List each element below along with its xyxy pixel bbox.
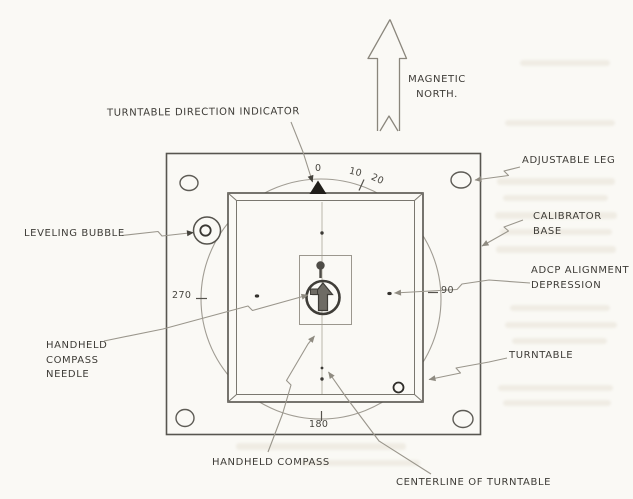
dial-mark-270: 270 (172, 290, 191, 301)
alignment-depression-left (255, 294, 259, 297)
turntable-direction-indicator-icon (310, 181, 327, 195)
label-handheld-compass-needle: HANDHELD COMPASS NEEDLE (46, 339, 107, 383)
turntable-corner-hole (394, 383, 404, 393)
leveling-bubble-gauge (194, 217, 221, 244)
label-handheld-compass: HANDHELD COMPASS (212, 456, 330, 471)
magnetic-north-arrow-icon (368, 20, 407, 132)
leader-turntable (429, 358, 507, 380)
leader-turntable-direction-indicator (291, 122, 313, 182)
compass-needle-west-tab (311, 289, 318, 295)
label-adcp-alignment-depression: ADCP ALIGNMENT DEPRESSION (531, 264, 629, 293)
label-turntable: TURNTABLE (509, 349, 573, 364)
dial-mark-0: 0 (315, 163, 321, 174)
label-magnetic-north: MAGNETIC NORTH. (407, 73, 467, 102)
dial-mark-180: 180 (309, 419, 328, 430)
alignment-depression-right (387, 292, 391, 295)
leader-leveling-bubble (122, 232, 194, 237)
scanned-diagram-page: TURNTABLE DIRECTION INDICATOR MAGNETIC N… (0, 0, 633, 499)
adjustable-leg-top-right (451, 172, 471, 188)
label-adjustable-leg: ADJUSTABLE LEG (522, 154, 615, 169)
dial-mark-90: 90 (441, 285, 454, 296)
label-leveling-bubble: LEVELING BUBBLE (24, 227, 125, 242)
adjustable-leg-bottom-left (176, 410, 194, 427)
label-centerline-of-turntable: CENTERLINE OF TURNTABLE (396, 476, 551, 491)
compass-pin-icon (316, 261, 324, 269)
adjustable-leg-bottom-right (453, 411, 473, 428)
leveling-bubble-housing (194, 217, 221, 244)
label-turntable-direction-indicator: TURNTABLE DIRECTION INDICATOR (107, 105, 300, 121)
adjustable-leg-top-left (180, 176, 198, 191)
label-calibrator-base: CALIBRATOR BASE (533, 210, 633, 239)
